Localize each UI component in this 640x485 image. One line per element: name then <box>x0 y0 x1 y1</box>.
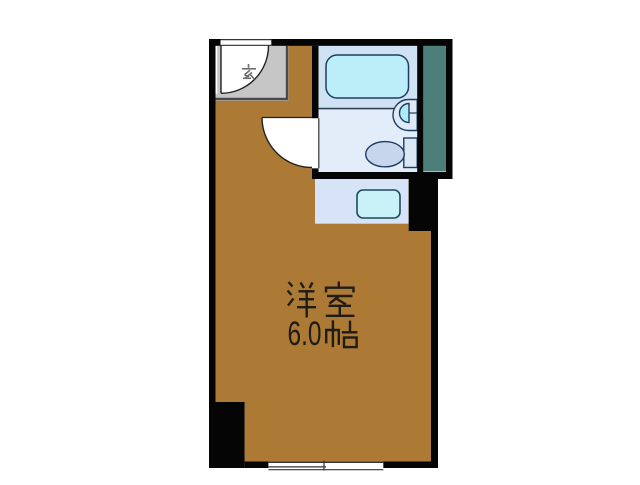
svg-text:6.0: 6.0 <box>288 315 322 353</box>
